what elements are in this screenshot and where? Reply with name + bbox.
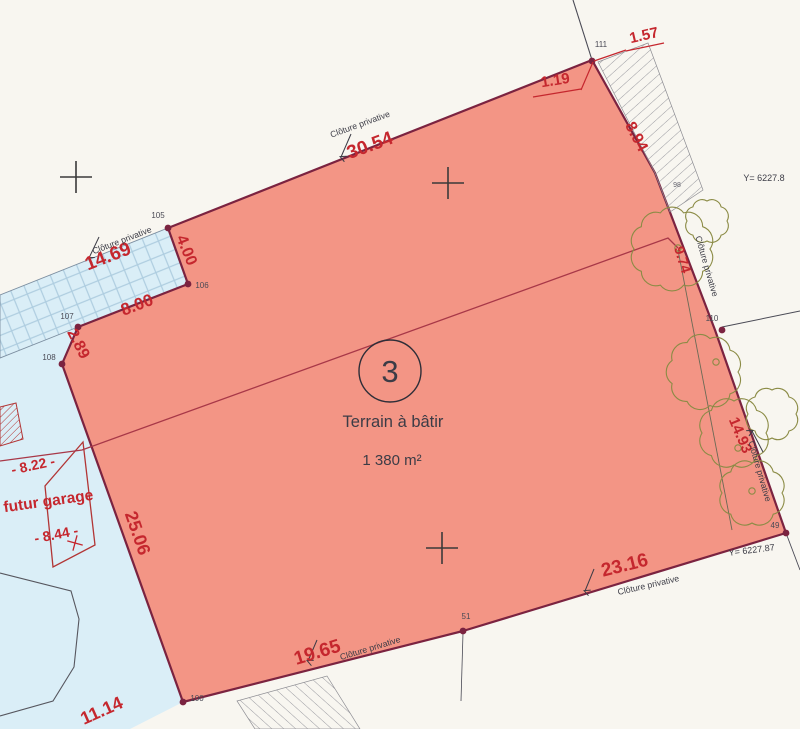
tree-canopy-5 [686, 200, 729, 243]
survey-point-106 [185, 281, 192, 288]
tree-canopy-6 [746, 388, 797, 439]
parcel-number: 3 [381, 354, 398, 389]
survey-point-label-107: 107 [60, 312, 74, 321]
survey-point-49 [783, 530, 790, 537]
survey-point-51 [460, 628, 467, 635]
site-plan: 1111051061071081005149110 30.541.191.578… [0, 0, 800, 729]
survey-point-label-105: 105 [151, 211, 165, 220]
y-coord-top: Y= 6227.8 [743, 173, 784, 183]
drop-line-point51 [461, 633, 463, 701]
parcel-type-label: Terrain à bâtir [343, 413, 444, 431]
survey-point-label-108: 108 [42, 353, 56, 362]
survey-point-110 [719, 327, 726, 334]
site-plan-drawing: 1111051061071081005149110 30.541.191.578… [0, 0, 800, 729]
survey-point-label-100: 100 [190, 694, 204, 703]
survey-point-label-111: 111 [595, 40, 608, 49]
survey-point-label-110: 110 [706, 314, 719, 323]
grid-cross-1 [60, 161, 92, 193]
survey-point-100 [180, 699, 187, 706]
survey-point-105 [165, 225, 172, 232]
parcel-area-label: 1 380 m² [362, 452, 421, 469]
boundary-line-point110 [722, 311, 800, 327]
survey-point-108 [59, 361, 66, 368]
boundary-line-top [573, 0, 592, 60]
survey-point-label-51: 51 [462, 612, 471, 621]
survey-point-label-106: 106 [195, 281, 209, 290]
dim-1-57: 1.57 [628, 24, 660, 47]
point-label-98: 98 [673, 182, 681, 189]
survey-point-label-49: 49 [771, 521, 780, 530]
boundary-line-point49 [786, 533, 800, 570]
